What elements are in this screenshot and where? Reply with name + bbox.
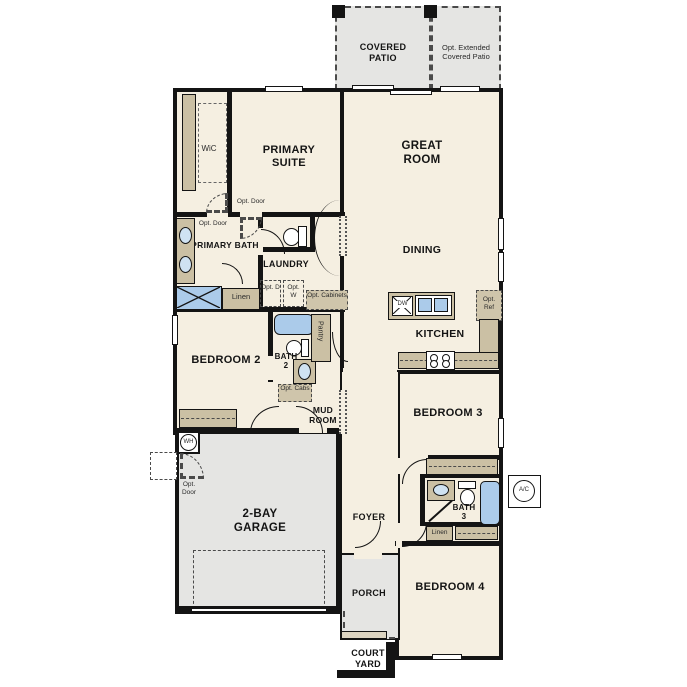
- courtyard-step: [341, 631, 387, 639]
- opt-door-label: Opt. Door: [175, 481, 203, 496]
- wic-label: WiC: [196, 144, 222, 153]
- cased-opening: [343, 368, 397, 375]
- opt-door-label: Opt. Door: [198, 220, 228, 228]
- bedroom4-label: BEDROOM 4: [410, 581, 490, 594]
- sink-basin: [434, 298, 448, 312]
- window: [432, 654, 462, 660]
- garage-label: 2-BAY GARAGE: [222, 508, 298, 535]
- patio-post: [332, 5, 345, 18]
- sink: [298, 363, 311, 380]
- opt-cabs-label: Opt. Cabs: [279, 385, 311, 393]
- window: [172, 315, 178, 345]
- sink-basin: [418, 298, 432, 312]
- closet-dash: [458, 533, 495, 534]
- laundry-label: LAUNDRY: [258, 259, 314, 270]
- dining-label: DINING: [392, 244, 452, 256]
- dishwasher-label: DW: [393, 301, 412, 308]
- court-yard-label: COURT YARD: [344, 648, 392, 669]
- window: [265, 86, 303, 92]
- window: [498, 218, 504, 250]
- bath3-label: BATH 3: [450, 503, 478, 522]
- sink: [179, 256, 192, 273]
- bedroom3-label: BEDROOM 3: [408, 407, 488, 420]
- porch-label: PORCH: [345, 588, 393, 599]
- toilet-tank: [298, 226, 307, 247]
- kitchen-counter-right: [479, 319, 499, 355]
- window: [498, 418, 504, 448]
- sink: [433, 484, 449, 496]
- wh-label: WH: [184, 439, 194, 446]
- cased-opening: [339, 216, 347, 256]
- door-opening: [398, 458, 403, 474]
- wic-outline: [198, 103, 227, 183]
- stove: [426, 351, 455, 370]
- pantry-label: Pantry: [315, 321, 323, 341]
- closet-dash: [181, 418, 235, 419]
- opt-door-landing: [150, 452, 177, 480]
- bathtub: [274, 314, 314, 335]
- primary-bath-label: PRIMARY BATH: [190, 240, 260, 250]
- toilet-tank: [301, 339, 309, 357]
- sliding-door: [390, 90, 432, 95]
- shower: [176, 286, 222, 310]
- wic-shelving: [182, 94, 196, 191]
- closet-dash: [429, 466, 495, 467]
- great-room-label: GREAT ROOM: [392, 140, 452, 167]
- opt-ref-label: Opt. Ref: [477, 296, 501, 311]
- sink: [179, 227, 192, 244]
- bathtub: [480, 481, 500, 525]
- linen-label: Linen: [222, 293, 260, 302]
- primary-suite-label: PRIMARY SUITE: [249, 144, 329, 170]
- window: [498, 252, 504, 282]
- door-opening: [354, 552, 382, 559]
- driveway-outline: [193, 550, 325, 609]
- patio-post: [424, 5, 437, 18]
- linen-label: Linen: [426, 529, 453, 537]
- ac-label: A/C: [519, 487, 529, 494]
- courtyard-wall: [337, 670, 395, 678]
- covered-patio-label: COVERED PATIO: [346, 42, 420, 63]
- sliding-door: [352, 85, 394, 90]
- bedroom2-label: BEDROOM 2: [186, 354, 266, 367]
- water-heater: WH: [180, 434, 197, 451]
- floor-plan: COVERED PATIO Opt. Extended Covered Pati…: [0, 0, 687, 687]
- opt-door-label: Opt. Door: [236, 198, 266, 206]
- ac-unit: A/C: [513, 480, 535, 502]
- garage-door: [192, 607, 326, 613]
- window: [440, 86, 480, 92]
- kitchen-label: KITCHEN: [409, 328, 471, 340]
- toilet-tank: [458, 481, 476, 489]
- opt-washer-label: Opt. W: [284, 284, 303, 299]
- opt-dryer-label: Opt. D: [261, 284, 280, 292]
- opt-cabinets-label: Opt. Cabinets: [307, 292, 347, 300]
- opt-extended-patio-label: Opt. Extended Covered Patio: [436, 44, 496, 62]
